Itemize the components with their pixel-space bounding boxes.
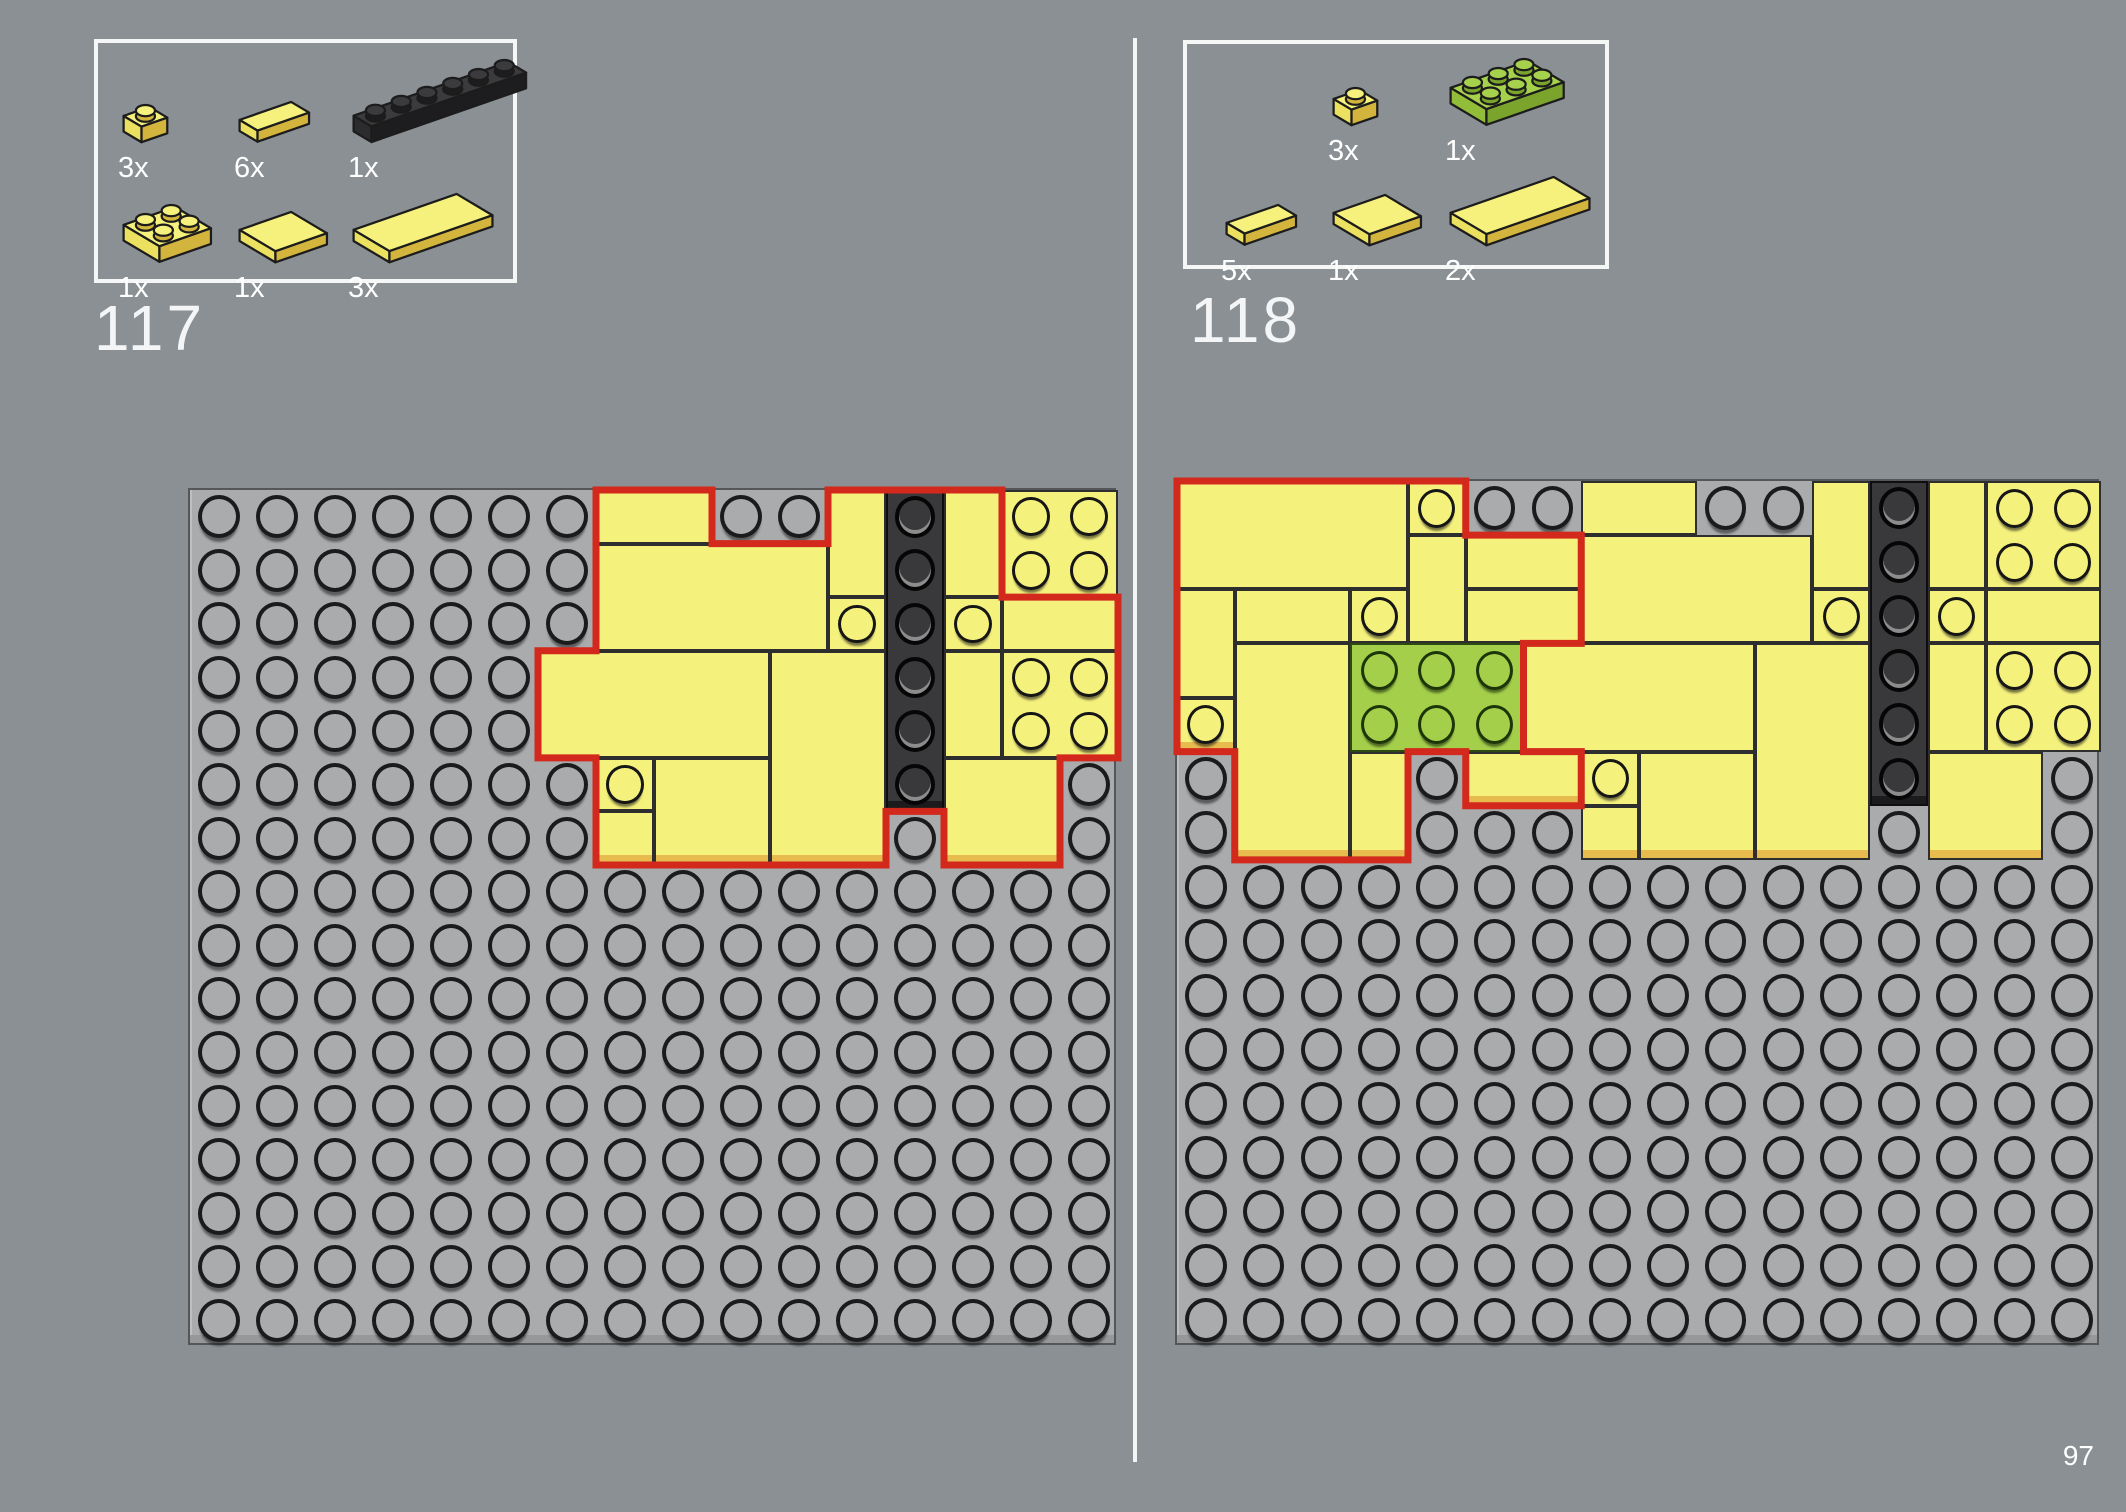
baseplate-stud xyxy=(430,1138,472,1181)
baseplate-stud xyxy=(1820,974,1862,1017)
baseplate-stud xyxy=(1301,1136,1343,1179)
baseplate-stud xyxy=(1474,486,1516,529)
part-cell: 5x xyxy=(1221,196,1328,288)
baseplate-stud xyxy=(314,817,356,860)
plate-2x2-yellow-icon xyxy=(118,198,218,271)
lego-piece-yellow xyxy=(1581,481,1697,535)
baseplate-stud xyxy=(430,817,472,860)
baseplate-stud xyxy=(372,924,414,967)
yellow-stud xyxy=(1070,551,1107,590)
part-cell: 3x xyxy=(348,185,533,305)
baseplate-stud xyxy=(1820,1190,1862,1233)
baseplate-stud xyxy=(1532,919,1574,962)
baseplate-stud xyxy=(1010,924,1052,967)
baseplate-stud xyxy=(1474,1136,1516,1179)
baseplate-stud xyxy=(894,977,936,1020)
baseplate-stud xyxy=(430,924,472,967)
baseplate-stud xyxy=(1705,865,1747,908)
baseplate-stud xyxy=(256,710,298,753)
lego-piece-yellow-new xyxy=(1466,589,1582,643)
baseplate-stud xyxy=(952,1031,994,1074)
baseplate-stud xyxy=(372,1138,414,1181)
baseplate-stud xyxy=(256,977,298,1020)
baseplate-stud xyxy=(1416,1028,1458,1071)
black-stud xyxy=(1879,703,1919,745)
baseplate-stud xyxy=(1474,1082,1516,1125)
baseplate-stud xyxy=(720,1299,762,1342)
baseplate-stud xyxy=(198,1031,240,1074)
baseplate-stud xyxy=(952,870,994,913)
yellow-stud xyxy=(1012,497,1049,536)
baseplate-stud xyxy=(720,977,762,1020)
baseplate-stud xyxy=(1878,811,1920,854)
baseplate-stud xyxy=(836,1192,878,1235)
black-stud xyxy=(895,496,936,538)
baseplate-stud xyxy=(1358,1244,1400,1287)
baseplate-stud xyxy=(1301,1298,1343,1341)
baseplate-stud xyxy=(720,1031,762,1074)
baseplate-stud xyxy=(720,1138,762,1181)
baseplate-stud xyxy=(720,870,762,913)
baseplate-stud xyxy=(662,1138,704,1181)
baseplate-stud xyxy=(894,924,936,967)
lego-piece-yellow xyxy=(1928,752,2044,860)
baseplate-stud xyxy=(1416,1244,1458,1287)
part-count-label: 1x xyxy=(118,273,149,305)
baseplate-stud xyxy=(314,549,356,592)
baseplate-stud xyxy=(1185,1028,1227,1071)
baseplate-stud xyxy=(1243,919,1285,962)
baseplate-stud xyxy=(1474,1298,1516,1341)
black-stud xyxy=(895,710,936,752)
baseplate-stud xyxy=(1647,1136,1689,1179)
part-cell: 1x xyxy=(1445,52,1597,168)
baseplate-stud xyxy=(662,1192,704,1235)
baseplate-stud xyxy=(430,1245,472,1288)
baseplate-stud xyxy=(372,1245,414,1288)
lego-piece-yellow-new xyxy=(944,490,1002,597)
lego-piece-yellow-new xyxy=(770,651,886,865)
part-count-label: 6x xyxy=(234,153,265,185)
baseplate-stud xyxy=(546,495,588,538)
baseplate-stud xyxy=(1589,1136,1631,1179)
baseplate-stud xyxy=(488,1245,530,1288)
baseplate-stud xyxy=(546,817,588,860)
baseplate-stud xyxy=(1994,1190,2036,1233)
baseplate-stud xyxy=(778,495,820,538)
baseplate-stud xyxy=(1416,1082,1458,1125)
baseplate-stud xyxy=(256,763,298,806)
baseplate-stud xyxy=(546,763,588,806)
baseplate-stud xyxy=(1994,974,2036,1017)
part-cell: 1x xyxy=(118,198,234,305)
baseplate-stud xyxy=(952,1138,994,1181)
baseplate-stud xyxy=(894,817,936,860)
baseplate-stud xyxy=(778,1085,820,1128)
baseplate-stud xyxy=(1010,977,1052,1020)
baseplate-stud xyxy=(546,1299,588,1342)
baseplate-stud xyxy=(1820,1244,1862,1287)
lego-piece-yellow xyxy=(1524,643,1755,751)
baseplate-stud xyxy=(430,602,472,645)
yellow-stud xyxy=(1996,705,2033,744)
baseplate-stud xyxy=(720,1085,762,1128)
baseplate-stud xyxy=(1185,1298,1227,1341)
baseplate-stud xyxy=(372,763,414,806)
baseplate-stud xyxy=(256,602,298,645)
yellow-stud xyxy=(1996,489,2033,528)
baseplate-stud xyxy=(894,870,936,913)
baseplate-stud xyxy=(546,1138,588,1181)
lego-piece-yellow-new xyxy=(1350,752,1408,860)
baseplate-stud xyxy=(430,656,472,699)
yellow-stud xyxy=(838,605,875,644)
part-count-label: 5x xyxy=(1221,256,1252,288)
baseplate-stud xyxy=(1010,870,1052,913)
black-stud xyxy=(1879,541,1919,583)
baseplate-stud xyxy=(604,1138,646,1181)
baseplate-stud xyxy=(488,1085,530,1128)
baseplate-stud xyxy=(1589,919,1631,962)
yellow-stud xyxy=(2054,705,2091,744)
baseplate-stud xyxy=(1185,757,1227,800)
baseplate-stud xyxy=(778,1192,820,1235)
tile-1x2-yellow-icon xyxy=(234,93,316,151)
baseplate-stud xyxy=(1301,1028,1343,1071)
plate-1x1-yellow-icon xyxy=(1328,81,1384,134)
baseplate-stud xyxy=(1474,919,1516,962)
baseplate-stud xyxy=(430,977,472,1020)
part-cell: 1x xyxy=(1328,186,1445,288)
baseplate-stud xyxy=(256,870,298,913)
yellow-stud xyxy=(1012,551,1049,590)
baseplate-stud xyxy=(1416,1190,1458,1233)
baseplate-stud xyxy=(1243,1136,1285,1179)
baseplate-stud xyxy=(256,1085,298,1128)
lego-piece-yellow xyxy=(1639,752,1755,860)
baseplate-stud xyxy=(430,549,472,592)
baseplate-stud xyxy=(1358,1028,1400,1071)
baseplate-stud xyxy=(1416,865,1458,908)
baseplate-stud xyxy=(1416,1298,1458,1341)
tile-2x2-yellow-icon xyxy=(1328,186,1428,254)
baseplate-stud xyxy=(1820,1028,1862,1071)
tile-1x2-yellow-icon xyxy=(1221,196,1303,254)
baseplate-stud xyxy=(1532,1244,1574,1287)
baseplate-stud xyxy=(1878,1028,1920,1071)
part-cell: 2x xyxy=(1445,168,1597,288)
baseplate-stud xyxy=(1763,1136,1805,1179)
baseplate-stud xyxy=(1185,811,1227,854)
baseplate-stud xyxy=(314,602,356,645)
baseplate-stud xyxy=(1705,1244,1747,1287)
baseplate-stud xyxy=(1763,974,1805,1017)
baseplate-stud xyxy=(314,924,356,967)
baseplate-stud xyxy=(1994,1082,2036,1125)
baseplate-stud xyxy=(778,1245,820,1288)
baseplate-stud xyxy=(430,710,472,753)
lego-piece-yellow xyxy=(1928,643,1986,751)
baseplate-stud xyxy=(430,495,472,538)
part-count-label: 2x xyxy=(1445,256,1476,288)
part-count-label: 1x xyxy=(348,153,379,185)
baseplate-stud xyxy=(1936,1082,1978,1125)
part-count-label: 3x xyxy=(1328,136,1359,168)
green-stud xyxy=(1361,651,1398,690)
baseplate-stud xyxy=(546,977,588,1020)
baseplate-stud xyxy=(1474,811,1516,854)
yellow-stud xyxy=(1070,497,1107,536)
part-count-label: 1x xyxy=(1328,256,1359,288)
part-count-label: 3x xyxy=(348,273,379,305)
lego-piece-yellow-new xyxy=(1177,481,1408,589)
baseplate-stud xyxy=(1532,865,1574,908)
baseplate-stud xyxy=(1705,919,1747,962)
baseplate-stud xyxy=(372,1192,414,1235)
baseplate-stud xyxy=(720,924,762,967)
baseplate-stud xyxy=(372,602,414,645)
baseplate-stud xyxy=(1068,1085,1110,1128)
lego-piece-yellow-new xyxy=(654,758,770,865)
parts-box-117-grid: 3x6x1x1x1x3x xyxy=(98,43,513,279)
baseplate-stud xyxy=(314,870,356,913)
baseplate-stud xyxy=(488,495,530,538)
baseplate-stud xyxy=(952,1085,994,1128)
baseplate-stud xyxy=(1820,919,1862,962)
baseplate-stud xyxy=(1647,1028,1689,1071)
yellow-stud xyxy=(1012,712,1049,751)
lego-piece-yellow-new xyxy=(1002,597,1118,651)
baseplate-stud xyxy=(1358,919,1400,962)
lego-piece-yellow-new xyxy=(944,758,1060,865)
baseplate-stud xyxy=(1301,865,1343,908)
baseplate-stud xyxy=(314,656,356,699)
yellow-stud xyxy=(1938,597,1975,636)
lego-piece-yellow xyxy=(1581,535,1812,643)
baseplate-stud xyxy=(1474,1244,1516,1287)
baseplate-stud xyxy=(198,924,240,967)
lego-piece-yellow xyxy=(1928,481,1986,589)
baseplate-stud xyxy=(256,656,298,699)
baseplate-stud xyxy=(2051,974,2093,1017)
lego-piece-yellow-new xyxy=(1466,752,1582,806)
baseplate-stud xyxy=(198,549,240,592)
baseplate-stud xyxy=(662,1299,704,1342)
baseplate-stud xyxy=(372,977,414,1020)
baseplate-stud xyxy=(1243,865,1285,908)
tile-2x4-yellow-icon xyxy=(1445,168,1596,254)
baseplate-stud xyxy=(1878,1190,1920,1233)
baseplate-stud xyxy=(1994,865,2036,908)
baseplate-stud xyxy=(256,549,298,592)
lego-piece-yellow xyxy=(1986,589,2102,643)
yellow-stud xyxy=(2054,543,2091,582)
baseplate-stud xyxy=(1936,1298,1978,1341)
baseplate-stud xyxy=(1647,1298,1689,1341)
part-cell: 1x xyxy=(348,53,533,185)
baseplate-stud xyxy=(1763,1028,1805,1071)
baseplate-stud xyxy=(720,495,762,538)
baseplate-stud xyxy=(1878,974,1920,1017)
baseplate-stud xyxy=(1647,1082,1689,1125)
baseplate-118 xyxy=(1175,479,2099,1345)
baseplate-stud xyxy=(1358,1136,1400,1179)
baseplate-stud xyxy=(1878,1136,1920,1179)
baseplate-stud xyxy=(198,817,240,860)
baseplate-stud xyxy=(1936,974,1978,1017)
part-cell: 1x xyxy=(234,203,348,305)
baseplate-stud xyxy=(546,1192,588,1235)
part-count-label: 1x xyxy=(1445,136,1476,168)
baseplate-stud xyxy=(546,602,588,645)
baseplate-stud xyxy=(1068,763,1110,806)
baseplate-stud xyxy=(1010,1138,1052,1181)
baseplate-stud xyxy=(1474,1028,1516,1071)
baseplate-stud xyxy=(198,1085,240,1128)
baseplate-stud xyxy=(1301,1082,1343,1125)
baseplate-stud xyxy=(1416,974,1458,1017)
lego-piece-yellow-new xyxy=(1408,535,1466,643)
baseplate-stud xyxy=(1878,919,1920,962)
baseplate-stud xyxy=(1532,1082,1574,1125)
baseplate-stud xyxy=(488,870,530,913)
baseplate-stud xyxy=(2051,865,2093,908)
baseplate-stud xyxy=(1705,1028,1747,1071)
baseplate-stud xyxy=(1358,1190,1400,1233)
baseplate-stud xyxy=(546,924,588,967)
baseplate-stud xyxy=(778,870,820,913)
lego-piece-yellow-new xyxy=(828,490,886,597)
baseplate-stud xyxy=(836,1085,878,1128)
baseplate-stud xyxy=(1474,1190,1516,1233)
baseplate-stud xyxy=(1878,1298,1920,1341)
lego-piece-yellow-new xyxy=(944,651,1002,758)
baseplate-stud xyxy=(314,977,356,1020)
baseplate-stud xyxy=(2051,1190,2093,1233)
baseplate-stud xyxy=(778,977,820,1020)
baseplate-stud xyxy=(1301,919,1343,962)
baseplate-stud xyxy=(430,763,472,806)
baseplate-stud xyxy=(894,1192,936,1235)
baseplate-stud xyxy=(604,1085,646,1128)
baseplate-stud xyxy=(894,1085,936,1128)
baseplate-stud xyxy=(894,1299,936,1342)
yellow-stud xyxy=(2054,489,2091,528)
baseplate-stud xyxy=(604,1245,646,1288)
baseplate-stud xyxy=(1936,1190,1978,1233)
baseplate-stud xyxy=(488,549,530,592)
baseplate-stud xyxy=(256,817,298,860)
baseplate-stud xyxy=(488,1299,530,1342)
baseplate-stud xyxy=(488,924,530,967)
plate-1x1-yellow-icon xyxy=(118,98,174,151)
baseplate-stud xyxy=(198,495,240,538)
baseplate-stud xyxy=(488,656,530,699)
baseplate-stud xyxy=(198,1138,240,1181)
baseplate-stud xyxy=(1416,919,1458,962)
baseplate-stud xyxy=(198,1192,240,1235)
baseplate-stud xyxy=(198,656,240,699)
yellow-stud xyxy=(1592,759,1629,798)
parts-box-117: 3x6x1x1x1x3x xyxy=(94,39,517,283)
baseplate-stud xyxy=(836,1245,878,1288)
baseplate-stud xyxy=(1705,1190,1747,1233)
baseplate-stud xyxy=(198,602,240,645)
baseplate-117 xyxy=(188,488,1116,1345)
baseplate-stud xyxy=(1068,817,1110,860)
baseplate-stud xyxy=(1358,1082,1400,1125)
baseplate-stud xyxy=(198,870,240,913)
baseplate-stud xyxy=(1301,1244,1343,1287)
baseplate-stud xyxy=(430,870,472,913)
baseplate-stud xyxy=(1416,757,1458,800)
baseplate-stud xyxy=(2051,757,2093,800)
baseplate-stud xyxy=(1763,1082,1805,1125)
baseplate-stud xyxy=(488,1138,530,1181)
baseplate-stud xyxy=(604,924,646,967)
baseplate-stud xyxy=(1301,1190,1343,1233)
baseplate-stud xyxy=(1994,919,2036,962)
page-number: 97 xyxy=(2046,1440,2094,1472)
baseplate-stud xyxy=(314,1138,356,1181)
baseplate-stud xyxy=(1243,1298,1285,1341)
baseplate-stud xyxy=(198,977,240,1020)
baseplate-stud xyxy=(372,656,414,699)
baseplate-stud xyxy=(430,1299,472,1342)
yellow-stud xyxy=(1012,658,1049,697)
baseplate-stud xyxy=(1185,919,1227,962)
baseplate-stud xyxy=(1705,1082,1747,1125)
baseplate-stud xyxy=(1994,1028,2036,1071)
yellow-stud xyxy=(1418,489,1455,528)
baseplate-stud xyxy=(314,1245,356,1288)
baseplate-stud xyxy=(894,1138,936,1181)
baseplate-stud xyxy=(1010,1299,1052,1342)
yellow-stud xyxy=(1070,658,1107,697)
baseplate-stud xyxy=(314,710,356,753)
part-count-label: 3x xyxy=(118,153,149,185)
baseplate-stud xyxy=(546,1085,588,1128)
yellow-stud xyxy=(606,765,643,804)
black-stud xyxy=(1879,758,1919,800)
green-stud xyxy=(1476,705,1513,744)
baseplate-stud xyxy=(952,924,994,967)
baseplate-stud xyxy=(778,924,820,967)
baseplate-stud xyxy=(198,763,240,806)
baseplate-stud xyxy=(1936,919,1978,962)
baseplate-stud xyxy=(1589,974,1631,1017)
baseplate-stud xyxy=(1589,1190,1631,1233)
baseplate-stud xyxy=(1068,977,1110,1020)
baseplate-stud xyxy=(836,1299,878,1342)
baseplate-stud xyxy=(1647,865,1689,908)
baseplate-stud xyxy=(198,1299,240,1342)
baseplate-stud xyxy=(256,495,298,538)
baseplate-stud xyxy=(662,977,704,1020)
baseplate-stud xyxy=(372,1299,414,1342)
baseplate-stud xyxy=(488,1031,530,1074)
baseplate-stud xyxy=(952,1192,994,1235)
baseplate-stud xyxy=(256,1031,298,1074)
baseplate-stud xyxy=(662,1245,704,1288)
baseplate-stud xyxy=(1068,1192,1110,1235)
lego-piece-yellow-new xyxy=(538,651,770,758)
step-number-118: 118 xyxy=(1190,288,1301,352)
baseplate-stud xyxy=(256,1138,298,1181)
baseplate-stud xyxy=(778,1138,820,1181)
baseplate-stud xyxy=(2051,811,2093,854)
baseplate-stud xyxy=(1010,1085,1052,1128)
